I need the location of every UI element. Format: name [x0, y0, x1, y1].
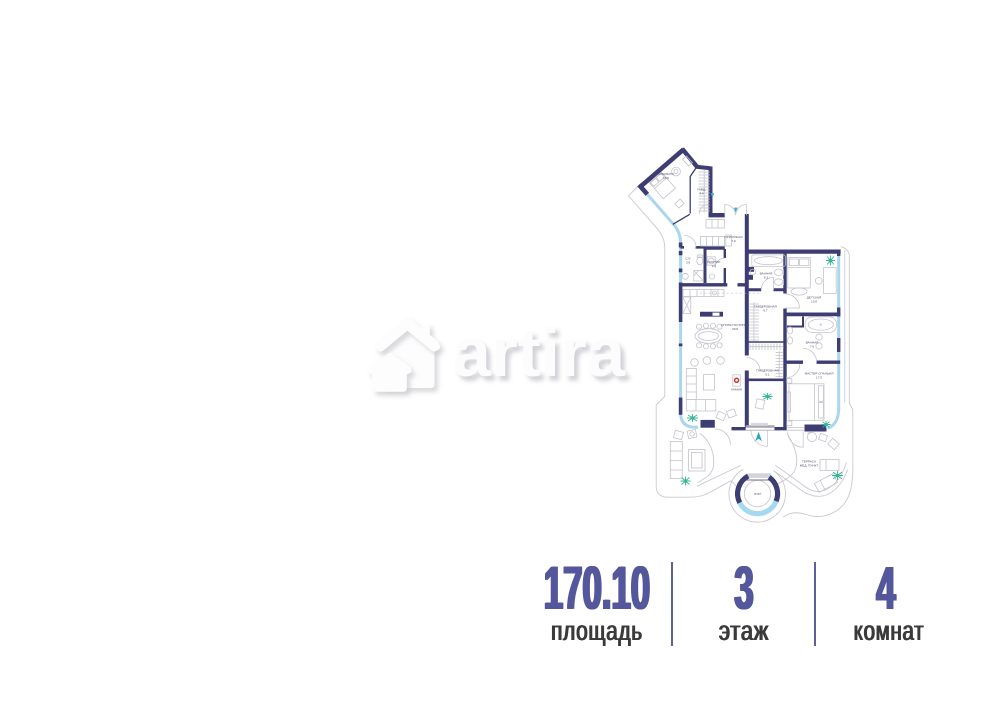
svg-text:7.6: 7.6 — [810, 345, 815, 349]
svg-text:2.1: 2.1 — [712, 264, 717, 268]
svg-text:6.1: 6.1 — [765, 373, 770, 377]
svg-text:7.0: 7.0 — [731, 239, 736, 243]
svg-text:КАМИН: КАМИН — [731, 388, 742, 392]
svg-text:15.8: 15.8 — [811, 300, 817, 304]
svg-text:17.5: 17.5 — [816, 376, 822, 380]
svg-text:3.6: 3.6 — [686, 261, 691, 265]
svg-text:ЛИФТ: ЛИФТ — [753, 492, 761, 496]
svg-text:39.8: 39.8 — [732, 327, 738, 331]
svg-text:16.8: 16.8 — [663, 176, 669, 180]
svg-text:4.4: 4.4 — [699, 192, 704, 196]
svg-text:6.7: 6.7 — [763, 309, 768, 313]
svg-text:6.3: 6.3 — [764, 276, 769, 280]
svg-text:МЕД. ПУНКТ: МЕД. ПУНКТ — [800, 464, 819, 468]
